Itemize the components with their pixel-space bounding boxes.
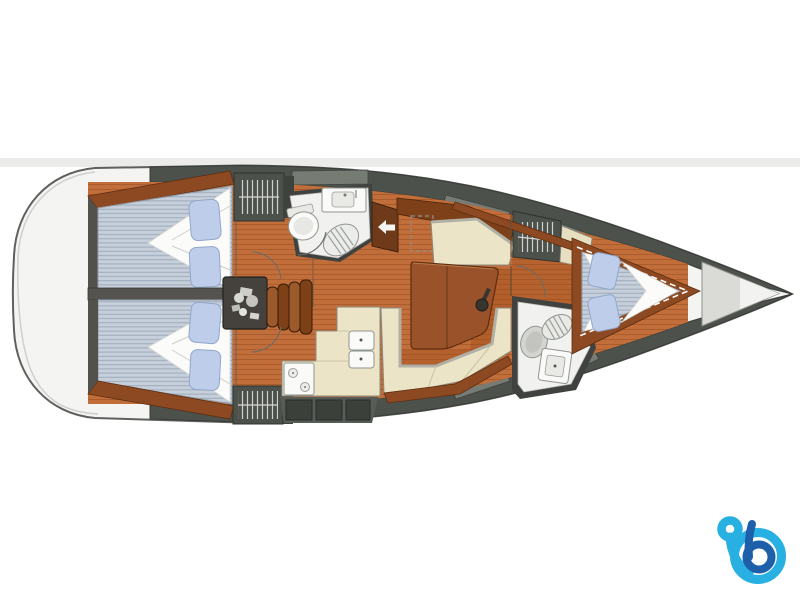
aft-cabin-starboard-headboard: [88, 300, 98, 394]
boat-floorplan: [0, 0, 800, 600]
double-sink-icon: [349, 331, 374, 368]
aft-cabin-divider-bulkhead: [88, 288, 234, 300]
pillow: [188, 302, 221, 344]
pillow: [188, 199, 221, 241]
aft-cabin-port-headboard: [88, 196, 98, 290]
engine-compartment: [223, 277, 267, 329]
stove-icon: [284, 363, 314, 395]
sink-icon: [322, 188, 366, 212]
pillow: [189, 349, 221, 391]
page: [0, 0, 800, 600]
companionway-cabinet: [372, 202, 398, 252]
hanging-locker-port: [234, 173, 294, 221]
galley-lockers: [280, 397, 378, 423]
companionway-steps: [267, 280, 312, 334]
pillow: [189, 246, 221, 288]
background-band: [0, 158, 800, 167]
sink-icon: [538, 348, 572, 384]
